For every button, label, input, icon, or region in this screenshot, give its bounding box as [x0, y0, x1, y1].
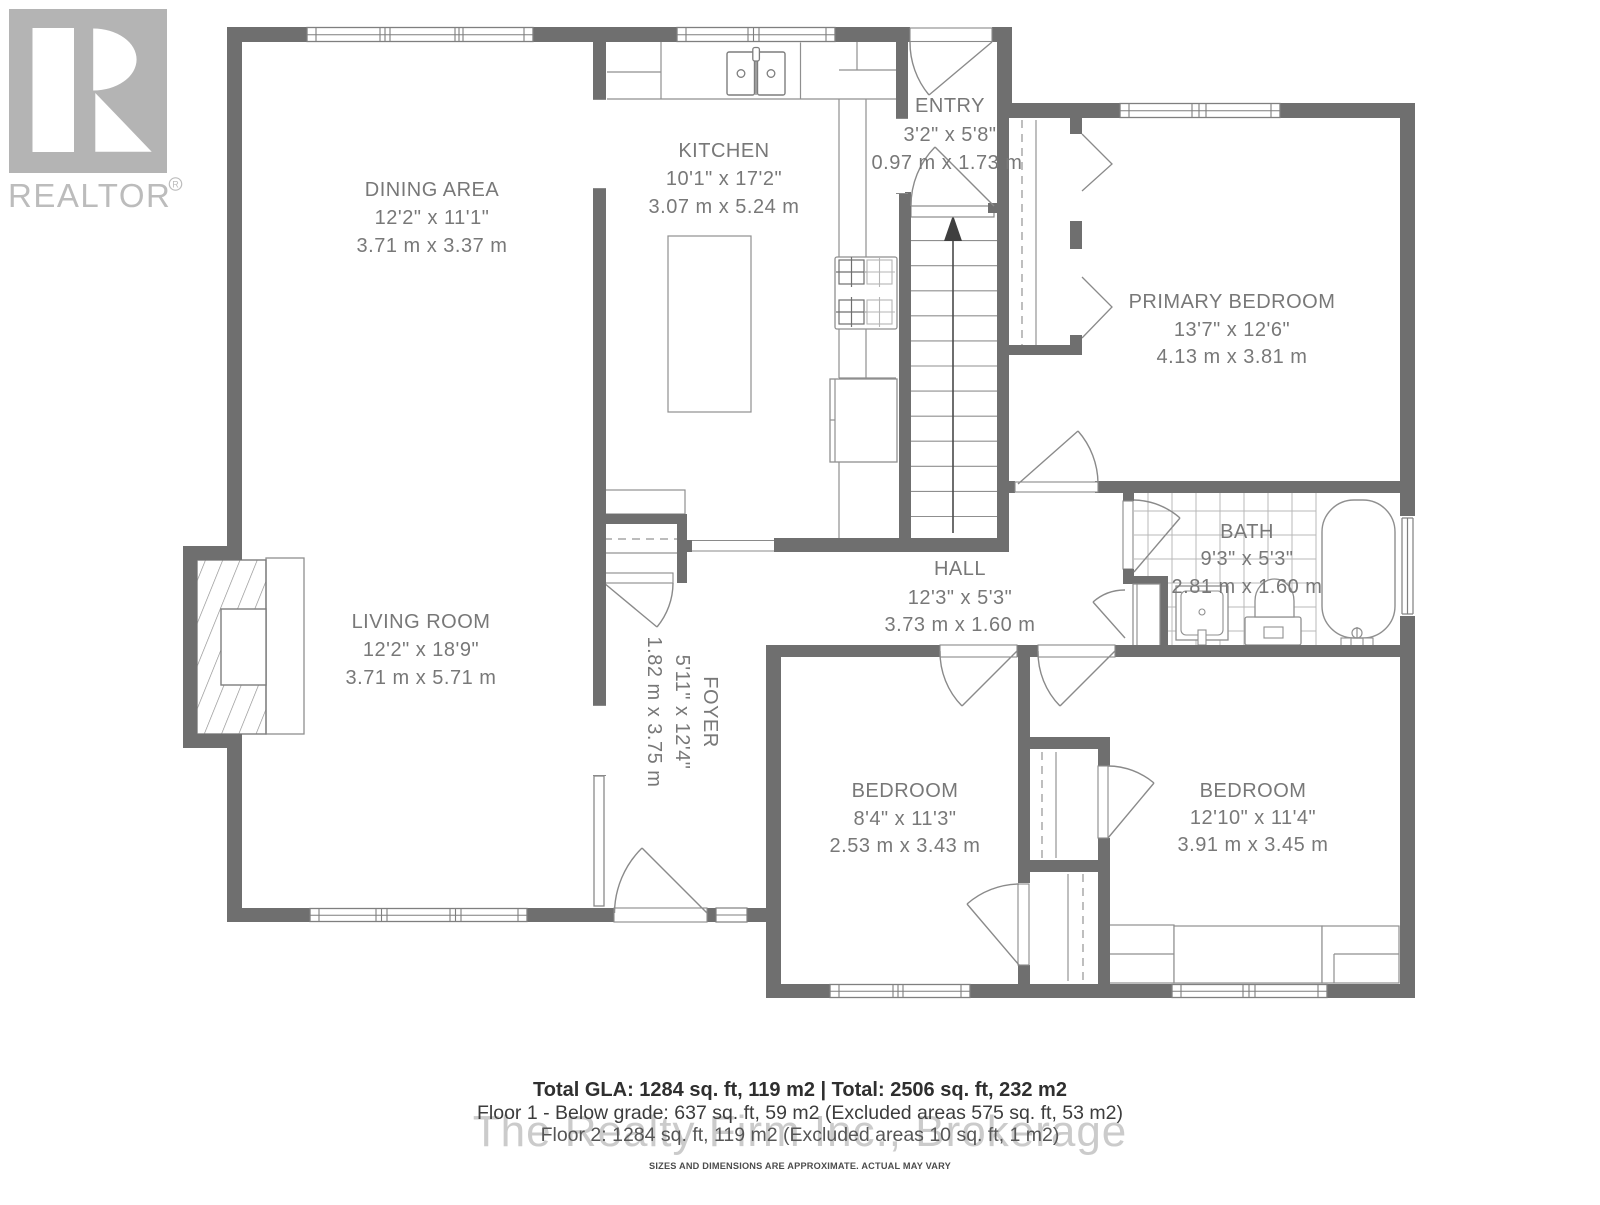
svg-text:R: R [172, 180, 179, 190]
svg-text:3'2" x 5'8": 3'2" x 5'8" [904, 124, 997, 146]
svg-text:ENTRY: ENTRY [915, 95, 985, 117]
svg-text:BATH: BATH [1220, 521, 1274, 543]
svg-text:12'2" x 11'1": 12'2" x 11'1" [375, 207, 490, 229]
svg-text:FOYER: FOYER [699, 676, 721, 747]
svg-text:LIVING ROOM: LIVING ROOM [352, 611, 491, 633]
svg-text:13'7" x 12'6": 13'7" x 12'6" [1174, 319, 1290, 341]
svg-text:12'3" x 5'3": 12'3" x 5'3" [908, 587, 1013, 609]
svg-text:2.53 m x 3.43 m: 2.53 m x 3.43 m [830, 835, 981, 857]
svg-text:HALL: HALL [934, 558, 986, 580]
svg-text:3.73 m x 1.60 m: 3.73 m x 1.60 m [885, 614, 1036, 636]
svg-text:3.91 m x 3.45 m: 3.91 m x 3.45 m [1178, 834, 1329, 856]
svg-text:1.82 m x 3.75 m: 1.82 m x 3.75 m [643, 637, 665, 788]
svg-text:Floor 1 - Below grade: 637 sq.: Floor 1 - Below grade: 637 sq. ft, 59 m2… [477, 1102, 1123, 1124]
svg-text:Total GLA: 1284 sq. ft, 119 m2: Total GLA: 1284 sq. ft, 119 m2 | Total: … [533, 1079, 1067, 1101]
svg-text:12'2" x 18'9": 12'2" x 18'9" [363, 639, 479, 661]
svg-text:REALTOR: REALTOR [8, 177, 171, 214]
svg-text:2.81 m x 1.60 m: 2.81 m x 1.60 m [1172, 576, 1323, 598]
svg-text:SIZES AND DIMENSIONS ARE APPRO: SIZES AND DIMENSIONS ARE APPROXIMATE. AC… [649, 1161, 951, 1171]
svg-text:10'1" x 17'2": 10'1" x 17'2" [666, 168, 782, 190]
svg-text:4.13 m x 3.81 m: 4.13 m x 3.81 m [1157, 346, 1308, 368]
svg-text:12'10" x 11'4": 12'10" x 11'4" [1190, 807, 1316, 829]
svg-text:9'3" x 5'3": 9'3" x 5'3" [1201, 548, 1294, 570]
svg-text:3.71 m x 5.71 m: 3.71 m x 5.71 m [346, 667, 497, 689]
svg-text:BEDROOM: BEDROOM [1200, 780, 1307, 802]
svg-text:PRIMARY BEDROOM: PRIMARY BEDROOM [1129, 291, 1336, 313]
svg-text:0.97 m x 1.73 m: 0.97 m x 1.73 m [872, 152, 1023, 174]
svg-text:3.07 m x 5.24 m: 3.07 m x 5.24 m [649, 196, 800, 218]
svg-text:3.71 m x 3.37 m: 3.71 m x 3.37 m [357, 235, 508, 257]
svg-text:BEDROOM: BEDROOM [852, 780, 959, 802]
svg-text:Floor 2: 1284 sq. ft, 119 m2 (: Floor 2: 1284 sq. ft, 119 m2 (Excluded a… [541, 1124, 1060, 1146]
svg-text:5'11" x 12'4": 5'11" x 12'4" [671, 655, 693, 770]
svg-text:DINING AREA: DINING AREA [365, 179, 500, 201]
svg-text:8'4" x 11'3": 8'4" x 11'3" [853, 808, 956, 830]
svg-text:KITCHEN: KITCHEN [678, 140, 769, 162]
